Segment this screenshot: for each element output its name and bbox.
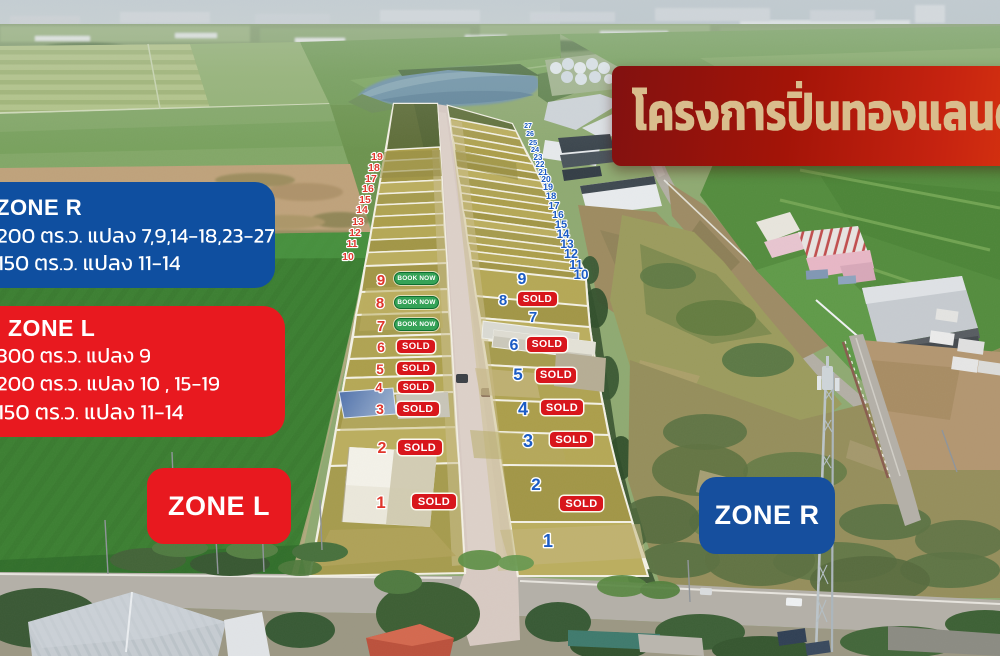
svg-text:1: 1 [376,493,385,512]
svg-text:3: 3 [376,401,384,417]
svg-text:1: 1 [543,531,553,551]
svg-text:4: 4 [518,399,528,419]
svg-text:7: 7 [377,318,385,335]
svg-text:5: 5 [376,362,384,377]
svg-text:8: 8 [376,295,384,312]
svg-text:3: 3 [523,431,533,451]
svg-text:10: 10 [342,251,354,263]
svg-text:10: 10 [573,267,588,282]
svg-text:2: 2 [531,475,540,494]
svg-text:8: 8 [499,292,507,309]
svg-text:6: 6 [377,339,385,355]
svg-text:6: 6 [510,337,519,354]
svg-text:9: 9 [518,271,527,288]
svg-text:2: 2 [378,440,387,457]
svg-text:5: 5 [513,365,522,384]
svg-text:4: 4 [375,380,383,395]
svg-text:9: 9 [377,272,385,289]
svg-text:7: 7 [529,309,537,326]
